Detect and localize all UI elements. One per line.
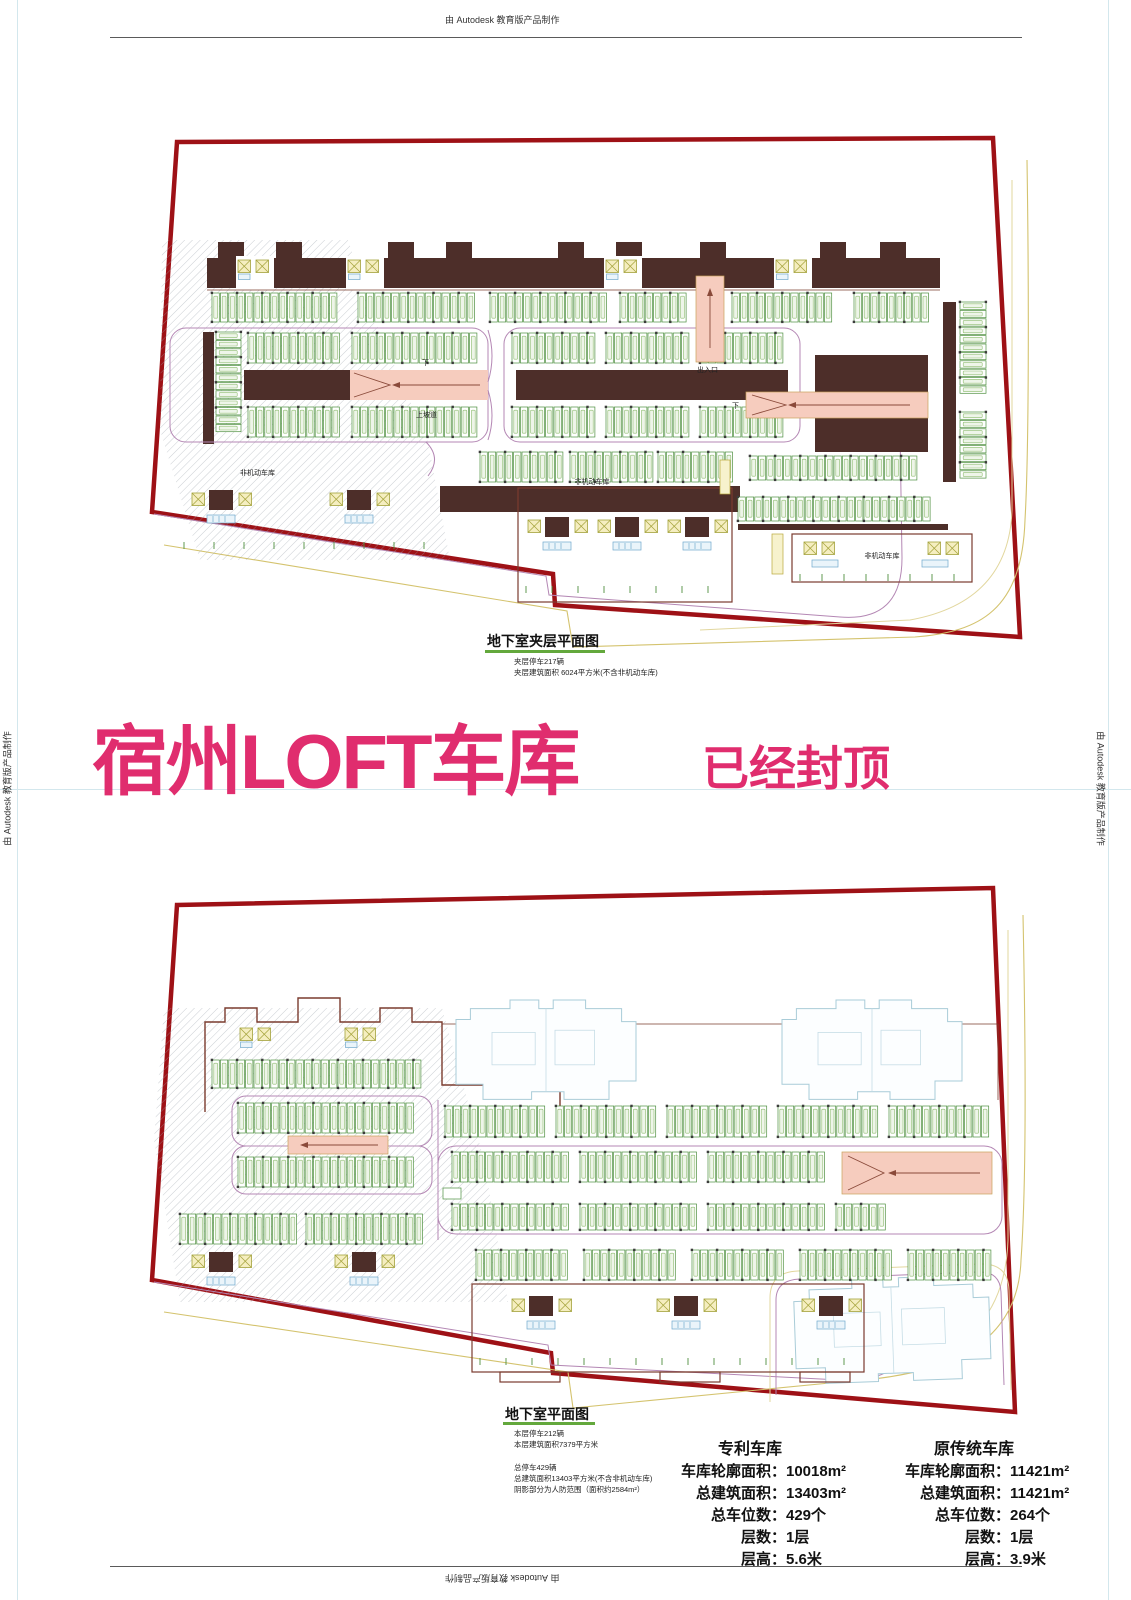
- sheet2-title: 地下室平面图: [505, 1404, 589, 1424]
- entrance-ramp: 出入口: [696, 276, 724, 374]
- stat-value: 1层: [786, 1527, 809, 1549]
- stair-core: [794, 260, 807, 273]
- stat-label: 层高：: [884, 1549, 1010, 1571]
- stat-label: 层数：: [884, 1527, 1010, 1549]
- parking-row: [211, 292, 337, 323]
- stair-core: [345, 1028, 358, 1048]
- stair-core: [363, 1028, 376, 1041]
- stat-row: 层数：1层: [884, 1527, 1069, 1549]
- parking-row: [888, 1105, 989, 1138]
- parking-row: [605, 406, 689, 438]
- parking-row: [237, 1156, 414, 1188]
- frame-line-left: [17, 0, 18, 1600]
- stat-label: 总建筑面积：: [660, 1483, 786, 1505]
- parking-row: [691, 1249, 784, 1281]
- watermark-left: 由 Autodesk 教育版产品制作: [1, 714, 14, 864]
- ghost-building-cluster: [793, 1275, 991, 1385]
- watermark-bottom: 由 Autodesk 教育版产品制作: [445, 1572, 560, 1585]
- stat-value: 11421m²: [1010, 1483, 1069, 1505]
- stat-label: 车库轮廓面积：: [884, 1461, 1010, 1483]
- parking-row: [619, 292, 686, 323]
- stat-value: 3.9米: [1010, 1549, 1046, 1571]
- stat-value: 5.6米: [786, 1549, 822, 1571]
- center-parking-block: [504, 328, 800, 442]
- parking-row: [777, 1105, 878, 1138]
- parking-row: [737, 496, 930, 522]
- sheet1-note1: 夹层停车217辆: [514, 656, 564, 667]
- parking-row: [247, 332, 340, 364]
- stat-label: 层高：: [660, 1549, 786, 1571]
- mezzanine-plan-drawing: 出入口 下 上坡道 下 非机动车库 非机: [140, 90, 1040, 665]
- stat-value: 13403m²: [786, 1483, 846, 1505]
- parking-row: [731, 292, 832, 323]
- project-status: 已经封顶: [702, 730, 890, 799]
- sheet2-note2: 本层建筑面积7379平方米: [514, 1439, 598, 1450]
- stair-core: [256, 260, 269, 273]
- sheet-top-rule: [110, 37, 1022, 38]
- parking-row: [211, 1059, 421, 1089]
- ghost-building-cluster: [456, 1000, 636, 1099]
- sheet2-note4: 总建筑面积13403平方米(不含非机动车库): [514, 1473, 652, 1484]
- stat-row: 总车位数：429个: [660, 1505, 846, 1527]
- basement-plan-drawing: [140, 860, 1040, 1435]
- stair-core: [258, 1028, 271, 1041]
- parking-row: [835, 1203, 886, 1231]
- stat-label: 车库轮廓面积：: [660, 1461, 786, 1483]
- parking-row: [511, 406, 595, 438]
- bottom-long-row: [475, 1249, 991, 1281]
- stats-patent-title: 专利车库: [690, 1435, 810, 1459]
- parking-row: [351, 332, 477, 364]
- stat-row: 车库轮廓面积：11421m²: [884, 1461, 1069, 1483]
- sheet1-title: 地下室夹层平面图: [487, 631, 599, 651]
- parking-row: [351, 406, 477, 438]
- stair-core: [366, 260, 379, 273]
- watermark-top: 由 Autodesk 教育版产品制作: [445, 13, 560, 26]
- parking-row: [749, 455, 917, 481]
- sheet2-note5: 阴影部分为人防范围（面积约2584m²）: [514, 1484, 644, 1495]
- stair-core: [946, 542, 959, 555]
- down-label: 下: [422, 359, 429, 367]
- frame-line-right: [1108, 0, 1109, 1600]
- stair-core: [238, 260, 251, 280]
- sheet1-note2: 夹层建筑面积 6024平方米(不含非机动车库): [514, 667, 658, 678]
- stair-core: [776, 260, 789, 280]
- stat-row: 层高：5.6米: [660, 1549, 846, 1571]
- stat-value: 11421m²: [1010, 1461, 1069, 1483]
- ramp-up-label: 上坡道: [416, 410, 437, 419]
- parking-row: [907, 1249, 991, 1281]
- stat-label: 总建筑面积：: [884, 1483, 1010, 1505]
- project-headline: 宿州LOFT车库: [92, 700, 578, 810]
- non-motor-garage-label: 非机动车库: [240, 468, 275, 477]
- down-label: 下: [732, 402, 739, 410]
- left-parking-block: [170, 328, 488, 444]
- stats-traditional-title: 原传统车库: [914, 1435, 1034, 1459]
- parking-row: [444, 1105, 545, 1138]
- stat-value: 1层: [1010, 1527, 1033, 1549]
- parking-column: [215, 331, 242, 432]
- stat-label: 总车位数：: [660, 1505, 786, 1527]
- stat-row: 总建筑面积：11421m²: [884, 1483, 1069, 1505]
- stair-core: [240, 1028, 253, 1048]
- stair-core: [928, 542, 941, 555]
- parking-row: [475, 1249, 568, 1281]
- ghost-building-cluster: [782, 1000, 962, 1099]
- parking-row: [237, 1102, 414, 1134]
- entrance-label: 出入口: [697, 365, 718, 374]
- parking-row: [555, 1105, 656, 1138]
- stat-row: 总建筑面积：13403m²: [660, 1483, 846, 1505]
- stat-value: 10018m²: [786, 1461, 846, 1483]
- stair-core: [624, 260, 637, 273]
- stat-row: 层数：1层: [660, 1527, 846, 1549]
- stat-value: 429个: [786, 1505, 826, 1527]
- parking-row: [605, 332, 689, 364]
- parking-row: [583, 1249, 676, 1281]
- stat-row: 总车位数：264个: [884, 1505, 1069, 1527]
- parking-column: [959, 411, 987, 478]
- sheet1-title-underline: [485, 650, 605, 653]
- stair-core: [804, 542, 817, 555]
- sheet2-note1: 本层停车212辆: [514, 1428, 564, 1439]
- parking-row: [853, 292, 929, 323]
- stat-value: 264个: [1010, 1505, 1050, 1527]
- parking-row: [247, 406, 340, 438]
- stat-row: 车库轮廓面积：10018m²: [660, 1461, 846, 1483]
- stair-core: [606, 260, 619, 280]
- drawing-sheet: { "watermark": { "text": "由 Autodesk 教育版…: [0, 0, 1131, 1600]
- non-motor-garage-label: 非机动车库: [575, 477, 610, 486]
- parking-row: [666, 1105, 767, 1138]
- parking-row: [479, 451, 563, 483]
- sheet2-title-underline: [503, 1422, 595, 1425]
- sheet2-note3: 总停车429辆: [514, 1462, 557, 1473]
- stat-label: 层数：: [660, 1527, 786, 1549]
- non-motor-garage-label: 非机动车库: [865, 551, 900, 560]
- watermark-right: 由 Autodesk 教育版产品制作: [1095, 714, 1108, 864]
- parking-column: [959, 301, 987, 394]
- stair-core: [822, 542, 835, 555]
- stat-row: 层高：3.9米: [884, 1549, 1069, 1571]
- stair-core: [348, 260, 361, 280]
- parking-row: [799, 1249, 892, 1281]
- parking-row: [511, 332, 595, 364]
- stats-traditional-rows: 车库轮廓面积：11421m² 总建筑面积：11421m² 总车位数：264个 层…: [884, 1461, 1069, 1571]
- stat-label: 总车位数：: [884, 1505, 1010, 1527]
- stats-patent-rows: 车库轮廓面积：10018m² 总建筑面积：13403m² 总车位数：429个 层…: [660, 1461, 846, 1571]
